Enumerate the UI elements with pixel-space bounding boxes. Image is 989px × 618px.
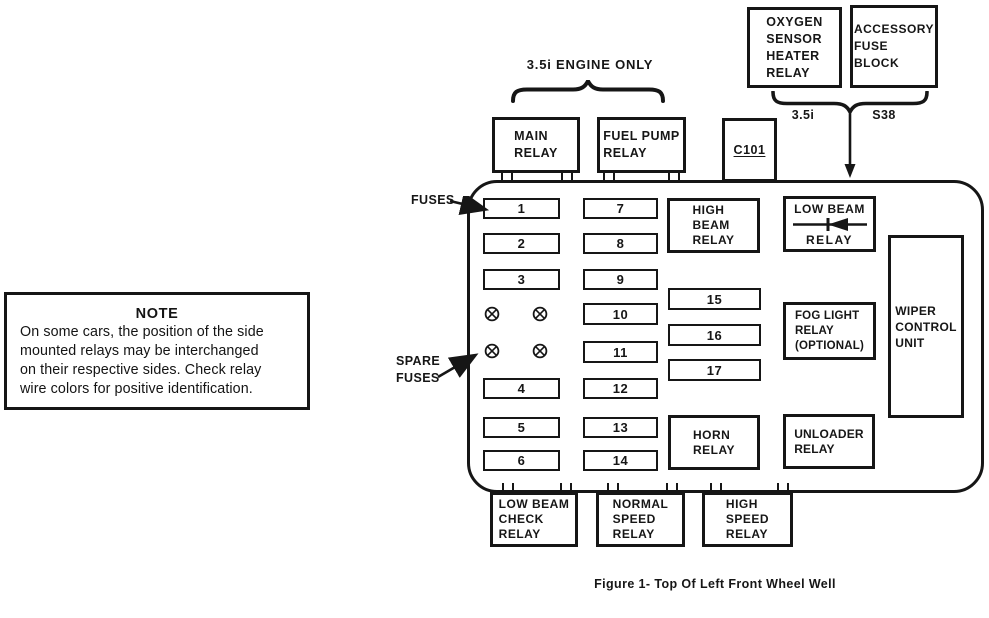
low-beam-relay-label-bottom: RELAY xyxy=(806,233,853,247)
fuse-slot-8: 8 xyxy=(583,233,658,254)
spare-fuse-icon xyxy=(532,343,548,359)
fuse-slot-10: 10 xyxy=(583,303,658,325)
connector-tab xyxy=(668,171,680,181)
fuse-slot-6: 6 xyxy=(483,450,560,471)
fuse-slot-13: 13 xyxy=(583,417,658,438)
spare-fuse-icon xyxy=(484,306,500,322)
fuse-slot-11: 11 xyxy=(583,341,658,363)
diode-icon xyxy=(791,216,869,233)
connector-tab xyxy=(710,483,722,493)
note-box: NOTE On some cars, the position of the s… xyxy=(4,292,310,410)
figure-caption: Figure 1- Top Of Left Front Wheel Well xyxy=(515,577,915,591)
fuel-pump-relay-label: FUEL PUMP RELAY xyxy=(603,128,680,162)
accessory-fuse-block-box: ACCESSORY FUSE BLOCK xyxy=(850,5,938,88)
high-speed-relay-label: HIGH SPEED RELAY xyxy=(726,497,769,542)
main-relay-label: MAIN RELAY xyxy=(514,128,558,162)
fuse-slot-17: 17 xyxy=(668,359,761,381)
horn-relay-label: HORN RELAY xyxy=(693,428,735,458)
top-brace xyxy=(510,80,666,103)
high-beam-relay-box: HIGH BEAM RELAY xyxy=(667,198,760,253)
s38-tag: S38 xyxy=(862,108,906,122)
engine-only-label: 3.5i ENGINE ONLY xyxy=(505,57,675,72)
connector-tab xyxy=(603,171,615,181)
accessory-fuse-block-label: ACCESSORY FUSE BLOCK xyxy=(854,21,934,72)
fuse-slot-7: 7 xyxy=(583,198,658,219)
fuse-slot-4: 4 xyxy=(483,378,560,399)
fuse-slot-5: 5 xyxy=(483,417,560,438)
note-body: On some cars, the position of the side m… xyxy=(7,322,307,399)
fuse-slot-3: 3 xyxy=(483,269,560,290)
low-beam-check-relay-box: LOW BEAM CHECK RELAY xyxy=(490,492,578,547)
horn-relay-box: HORN RELAY xyxy=(668,415,760,470)
normal-speed-relay-box: NORMAL SPEED RELAY xyxy=(596,492,685,547)
connector-tab xyxy=(501,171,513,181)
low-beam-check-relay-label: LOW BEAM CHECK RELAY xyxy=(499,497,570,542)
unloader-relay-box: UNLOADER RELAY xyxy=(783,414,875,469)
connector-tab xyxy=(607,483,619,493)
c101-connector-box: C101 xyxy=(722,118,777,182)
unloader-relay-label: UNLOADER RELAY xyxy=(794,427,864,457)
spare-fuses-arrow-icon xyxy=(434,348,486,382)
low-beam-relay-label-top: LOW BEAM xyxy=(794,202,865,216)
fog-light-relay-box: FOG LIGHT RELAY (OPTIONAL) xyxy=(783,302,876,360)
fuse-slot-14: 14 xyxy=(583,450,658,471)
high-speed-relay-box: HIGH SPEED RELAY xyxy=(702,492,793,547)
engine-35i-tag: 3.5i xyxy=(781,108,825,122)
fuses-arrow-icon xyxy=(447,196,495,218)
connector-tab xyxy=(561,171,573,181)
note-title: NOTE xyxy=(7,306,307,322)
wiper-control-unit-box: WIPER CONTROL UNIT xyxy=(888,235,964,418)
fog-light-relay-label: FOG LIGHT RELAY (OPTIONAL) xyxy=(795,309,864,354)
fuse-slot-2: 2 xyxy=(483,233,560,254)
down-arrow-icon xyxy=(841,113,859,179)
connector-tab xyxy=(560,483,572,493)
oxygen-sensor-heater-relay-label: OXYGEN SENSOR HEATER RELAY xyxy=(766,14,823,82)
spare-fuse-icon xyxy=(532,306,548,322)
connector-tab xyxy=(666,483,678,493)
oxygen-sensor-heater-relay-box: OXYGEN SENSOR HEATER RELAY xyxy=(747,7,842,88)
spare-fuse-icon xyxy=(484,343,500,359)
high-beam-relay-label: HIGH BEAM RELAY xyxy=(692,203,734,248)
fuse-slot-15: 15 xyxy=(668,288,761,310)
fuel-pump-relay-box: FUEL PUMP RELAY xyxy=(597,117,686,173)
low-beam-relay-box: LOW BEAM RELAY xyxy=(783,196,876,252)
fuse-slot-9: 9 xyxy=(583,269,658,290)
normal-speed-relay-label: NORMAL SPEED RELAY xyxy=(613,497,669,542)
fuse-slot-12: 12 xyxy=(583,378,658,399)
wiper-control-unit-label: WIPER CONTROL UNIT xyxy=(895,303,956,351)
main-relay-box: MAIN RELAY xyxy=(492,117,580,173)
c101-label: C101 xyxy=(734,142,766,159)
connector-tab xyxy=(502,483,514,493)
fuse-slot-16: 16 xyxy=(668,324,761,346)
connector-tab xyxy=(777,483,789,493)
